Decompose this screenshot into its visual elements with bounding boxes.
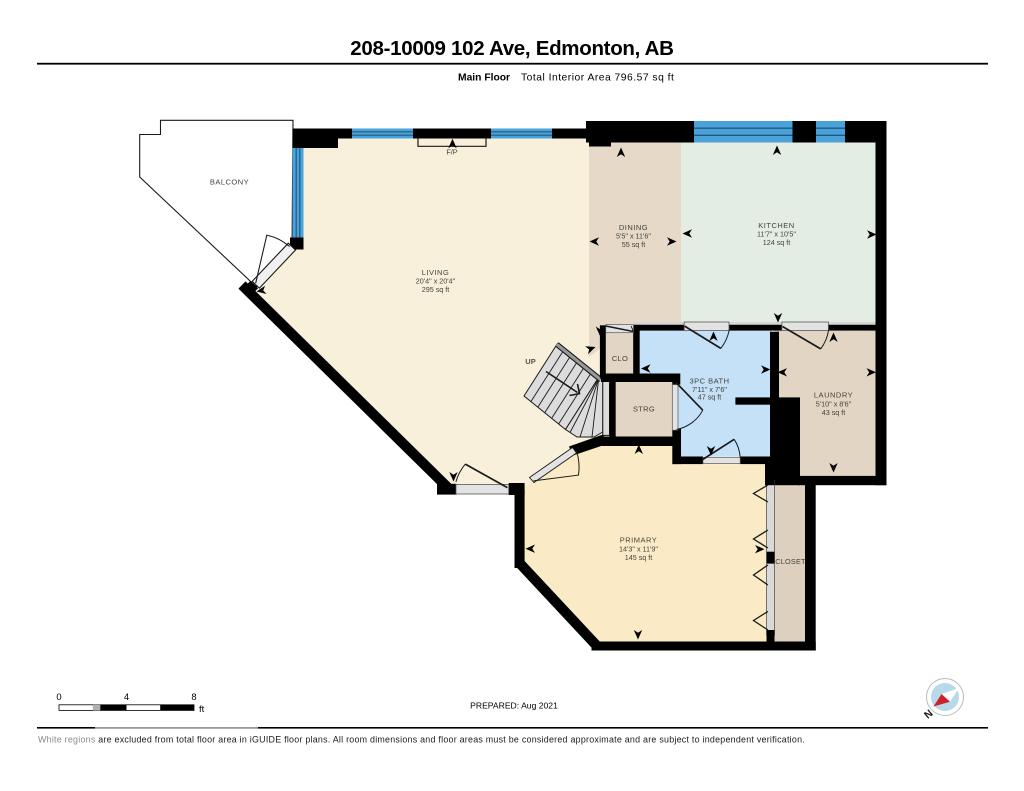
svg-text:Main Floor: Main Floor [458,73,510,84]
svg-text:ft: ft [199,704,205,715]
svg-text:47 sq ft: 47 sq ft [698,393,722,402]
svg-text:CLOSET: CLOSET [775,557,806,566]
svg-text:UP: UP [525,357,535,366]
svg-text:LAUNDRY: LAUNDRY [814,391,853,400]
svg-text:8: 8 [191,692,196,703]
svg-text:PRIMARY: PRIMARY [620,536,658,545]
svg-text:55 sq ft: 55 sq ft [622,240,646,249]
svg-text:CLO: CLO [612,354,628,363]
svg-text:4: 4 [124,692,129,703]
svg-text:295 sq ft: 295 sq ft [422,285,450,294]
svg-text:PREPARED: Aug 2021: PREPARED: Aug 2021 [470,701,558,711]
svg-text:0: 0 [56,692,61,703]
svg-text:43 sq ft: 43 sq ft [822,408,846,417]
svg-text:White regions are excluded fro: White regions are excluded from total fl… [38,735,805,745]
svg-text:208-10009 102 Ave, Edmonton, A: 208-10009 102 Ave, Edmonton, AB [350,37,673,60]
svg-text:124 sq ft: 124 sq ft [763,238,791,247]
svg-text:145 sq ft: 145 sq ft [625,553,653,562]
svg-text:F/P: F/P [446,148,457,157]
svg-text:BALCONY: BALCONY [210,178,249,187]
svg-text:STRG: STRG [633,405,655,414]
svg-text:Total Interior Area 796.57 sq: Total Interior Area 796.57 sq ft [521,73,674,84]
